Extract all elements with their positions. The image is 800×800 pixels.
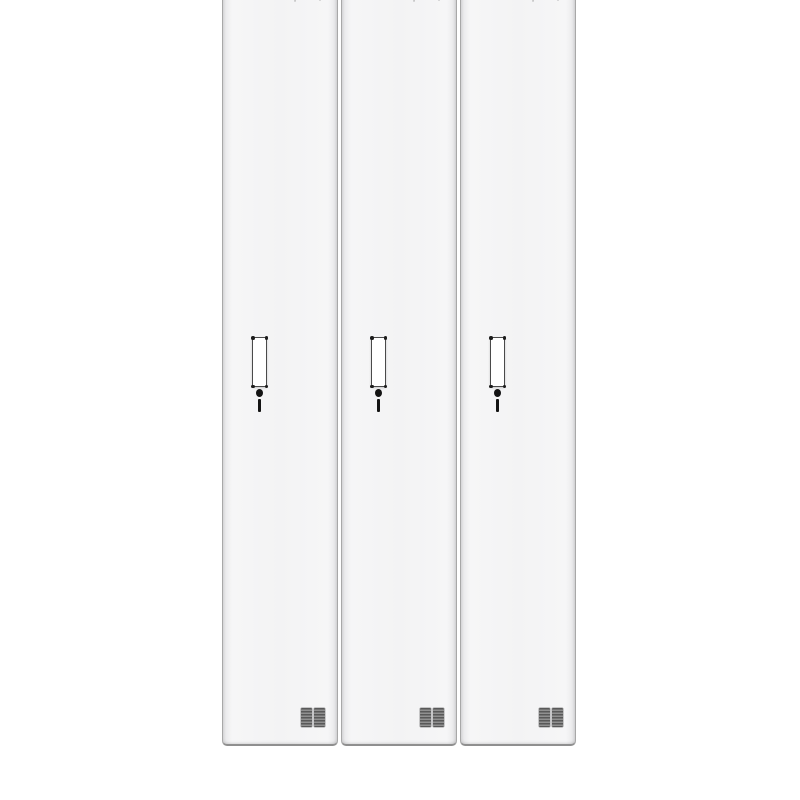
ventilation-grille: [539, 708, 563, 727]
louver-icon: [539, 708, 550, 727]
screw-icon: [265, 385, 269, 389]
screw-icon: [489, 385, 493, 389]
screw-icon: [370, 385, 374, 389]
screw-icon: [503, 385, 507, 389]
door-handle: [490, 337, 505, 387]
screw-icon: [384, 385, 388, 389]
brand-emblem-icon: [412, 0, 442, 6]
product-photo-canvas: [0, 0, 800, 800]
louver-icon: [552, 708, 563, 727]
brand-emblem-icon: [293, 0, 323, 6]
screw-icon: [503, 336, 507, 340]
keyhole-bore-icon: [494, 389, 501, 397]
door-handle: [252, 337, 267, 387]
keyhole-slot-icon: [258, 399, 261, 412]
ventilation-grille: [301, 708, 325, 727]
louver-icon: [420, 708, 431, 727]
keyhole-bore-icon: [256, 389, 263, 397]
screw-icon: [370, 336, 374, 340]
keyhole-slot-icon: [496, 399, 499, 412]
screw-icon: [251, 336, 255, 340]
door-2: [341, 0, 457, 746]
locker-cabinet: [222, 0, 576, 746]
keyhole-lock: [490, 389, 505, 412]
louver-icon: [301, 708, 312, 727]
door-3: [460, 0, 576, 746]
screw-icon: [384, 336, 388, 340]
keyhole-lock: [252, 389, 267, 412]
keyhole-lock: [371, 389, 386, 412]
door-1: [222, 0, 338, 746]
louver-icon: [433, 708, 444, 727]
ventilation-grille: [420, 708, 444, 727]
keyhole-slot-icon: [377, 399, 380, 412]
screw-icon: [265, 336, 269, 340]
screw-icon: [251, 385, 255, 389]
screw-icon: [489, 336, 493, 340]
brand-emblem-icon: [531, 0, 561, 6]
keyhole-bore-icon: [375, 389, 382, 397]
door-handle: [371, 337, 386, 387]
louver-icon: [314, 708, 325, 727]
